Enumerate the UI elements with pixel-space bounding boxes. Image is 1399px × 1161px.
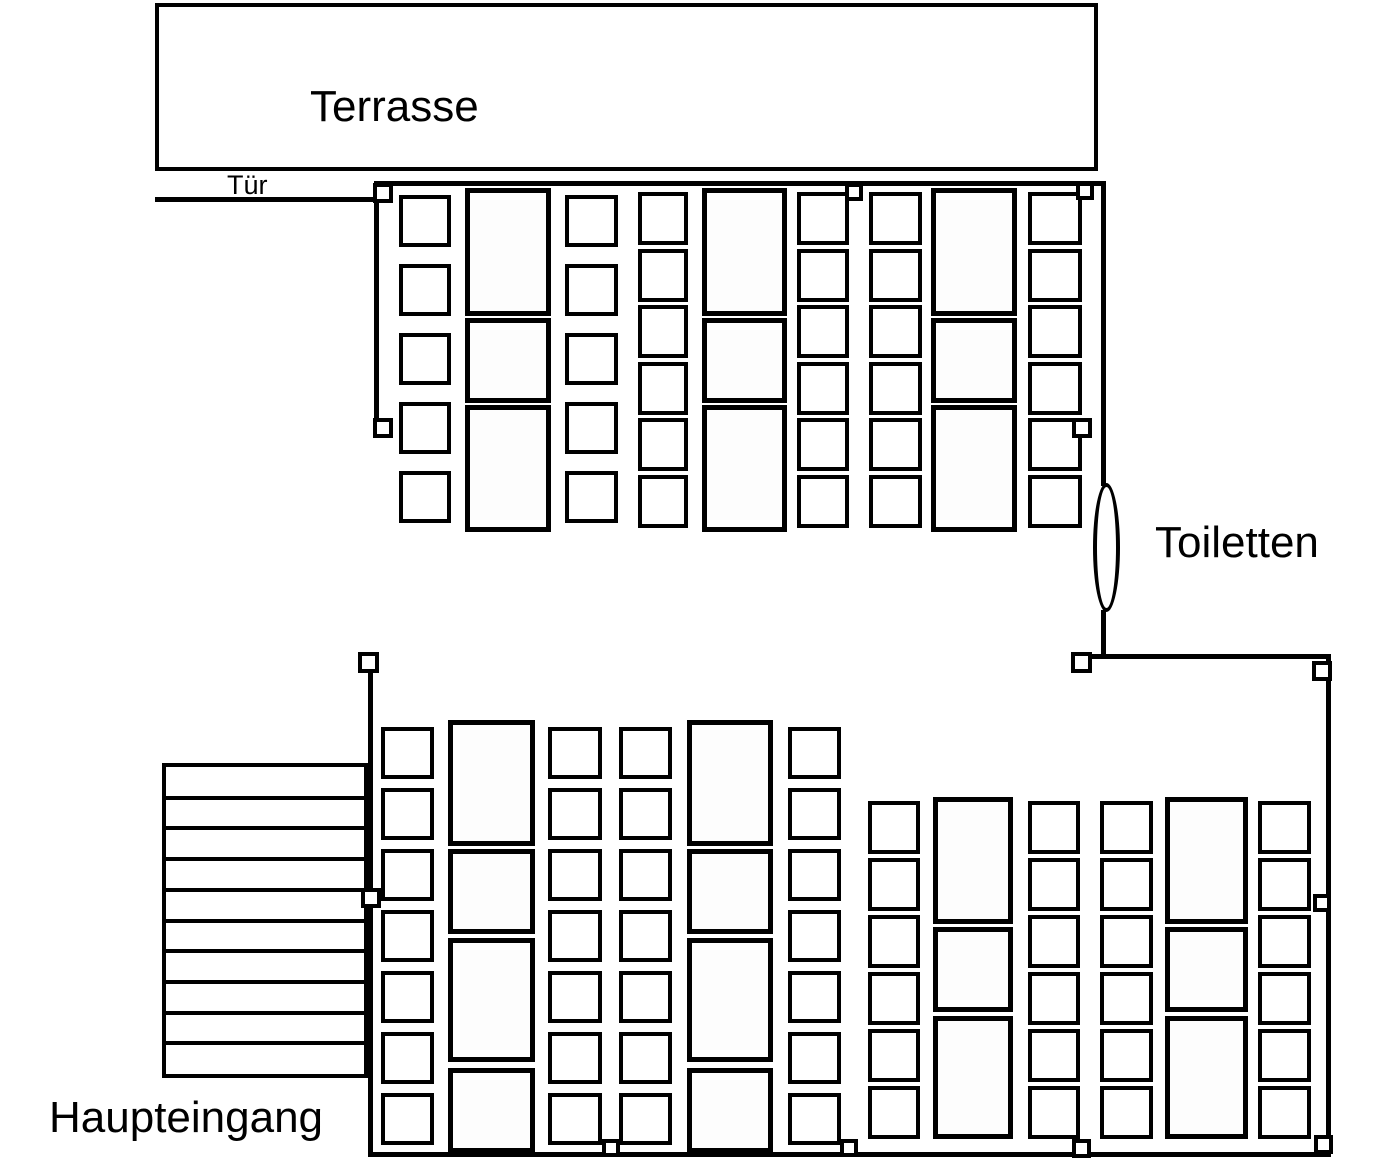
chair bbox=[788, 1093, 841, 1145]
chair bbox=[565, 195, 618, 247]
chair bbox=[868, 915, 920, 968]
selection-handle[interactable] bbox=[1314, 1135, 1333, 1154]
table bbox=[448, 938, 535, 1062]
chair bbox=[619, 727, 672, 779]
chair bbox=[1100, 1029, 1153, 1082]
chair bbox=[1028, 475, 1082, 528]
chair bbox=[788, 910, 841, 962]
chair bbox=[1028, 1086, 1080, 1139]
terrace-area: Terrasse bbox=[155, 3, 1098, 171]
selection-handle[interactable] bbox=[373, 183, 393, 203]
selection-handle[interactable] bbox=[1312, 661, 1332, 681]
selection-handle[interactable] bbox=[373, 418, 393, 438]
chair bbox=[619, 971, 672, 1023]
chair bbox=[638, 192, 688, 245]
toilet-door-arc bbox=[1093, 483, 1120, 612]
table bbox=[465, 405, 551, 532]
selection-handle[interactable] bbox=[1072, 418, 1092, 438]
chair bbox=[797, 475, 849, 528]
stair-step-line bbox=[166, 888, 364, 892]
chair bbox=[638, 305, 688, 358]
chair bbox=[1028, 1029, 1080, 1082]
chair bbox=[399, 402, 451, 454]
chair bbox=[638, 475, 688, 528]
chair bbox=[1028, 249, 1082, 302]
chair bbox=[797, 249, 849, 302]
wall-segment bbox=[1101, 610, 1106, 658]
chair bbox=[1258, 858, 1311, 911]
selection-handle[interactable] bbox=[1072, 1139, 1091, 1158]
table bbox=[933, 1016, 1013, 1139]
chair bbox=[548, 727, 602, 779]
chair bbox=[869, 475, 922, 528]
chair bbox=[868, 858, 920, 911]
stair-step-line bbox=[166, 1011, 364, 1015]
chair bbox=[638, 249, 688, 302]
chair bbox=[868, 1086, 920, 1139]
floor-plan: Terrasse Tür Toiletten Haupteingang bbox=[0, 0, 1399, 1161]
wall-segment bbox=[1101, 181, 1106, 486]
chair bbox=[565, 402, 618, 454]
chair bbox=[869, 249, 922, 302]
chair bbox=[548, 971, 602, 1023]
table bbox=[933, 797, 1013, 924]
chair bbox=[869, 305, 922, 358]
chair bbox=[548, 788, 602, 840]
chair bbox=[381, 1032, 434, 1084]
table bbox=[931, 188, 1017, 316]
chair bbox=[638, 418, 688, 471]
selection-handle[interactable] bbox=[361, 888, 381, 908]
selection-handle[interactable] bbox=[1076, 182, 1094, 200]
chair bbox=[868, 972, 920, 1025]
chair bbox=[619, 910, 672, 962]
chair bbox=[797, 305, 849, 358]
chair bbox=[1028, 858, 1080, 911]
chair bbox=[1028, 192, 1082, 245]
selection-handle[interactable] bbox=[845, 183, 863, 201]
selection-handle[interactable] bbox=[840, 1139, 858, 1157]
chair bbox=[1028, 362, 1082, 415]
chair bbox=[788, 971, 841, 1023]
chair bbox=[1258, 1029, 1311, 1082]
chair bbox=[381, 788, 434, 840]
table bbox=[687, 1068, 773, 1153]
table bbox=[687, 849, 773, 934]
chair bbox=[788, 849, 841, 901]
chair bbox=[381, 910, 434, 962]
wall-segment bbox=[1090, 654, 1331, 659]
table bbox=[1165, 797, 1248, 924]
chair bbox=[1028, 972, 1080, 1025]
chair bbox=[868, 801, 920, 854]
chair bbox=[868, 1029, 920, 1082]
wall-segment bbox=[374, 181, 1105, 186]
chair bbox=[797, 362, 849, 415]
chair bbox=[1028, 305, 1082, 358]
stair-step-line bbox=[166, 1041, 364, 1045]
chair bbox=[788, 1032, 841, 1084]
stair-step-line bbox=[166, 796, 364, 800]
chair bbox=[619, 849, 672, 901]
stair-step-line bbox=[166, 919, 364, 923]
chair bbox=[869, 192, 922, 245]
chair bbox=[548, 1032, 602, 1084]
chair bbox=[788, 727, 841, 779]
chair bbox=[399, 264, 451, 316]
selection-handle[interactable] bbox=[1071, 652, 1092, 673]
stair-step-line bbox=[166, 857, 364, 861]
wall-segment bbox=[374, 181, 379, 428]
table bbox=[933, 927, 1013, 1012]
chair bbox=[1028, 801, 1080, 854]
chair bbox=[399, 333, 451, 385]
door-label: Tür bbox=[227, 172, 268, 199]
chair bbox=[565, 471, 618, 523]
chair bbox=[797, 418, 849, 471]
chair bbox=[869, 362, 922, 415]
selection-handle[interactable] bbox=[1313, 894, 1331, 912]
stair-step-line bbox=[166, 826, 364, 830]
chair bbox=[1028, 915, 1080, 968]
terrace-label: Terrasse bbox=[310, 85, 479, 129]
chair bbox=[381, 727, 434, 779]
chair bbox=[619, 788, 672, 840]
selection-handle[interactable] bbox=[358, 652, 379, 673]
chair bbox=[381, 1093, 434, 1145]
table bbox=[702, 188, 787, 316]
table bbox=[448, 849, 535, 934]
chair bbox=[1100, 1086, 1153, 1139]
chair bbox=[548, 1093, 602, 1145]
chair bbox=[548, 849, 602, 901]
chair bbox=[619, 1032, 672, 1084]
table bbox=[448, 1068, 535, 1153]
chair bbox=[399, 195, 451, 247]
chair bbox=[399, 471, 451, 523]
toilets-label: Toiletten bbox=[1155, 521, 1319, 565]
chair bbox=[1100, 858, 1153, 911]
chair bbox=[797, 192, 849, 245]
stair-step-line bbox=[166, 980, 364, 984]
table bbox=[1165, 927, 1248, 1012]
table bbox=[702, 405, 787, 532]
chair bbox=[565, 264, 618, 316]
selection-handle[interactable] bbox=[602, 1139, 620, 1157]
chair bbox=[869, 418, 922, 471]
chair bbox=[548, 910, 602, 962]
chair bbox=[1258, 972, 1311, 1025]
stair-step-line bbox=[166, 949, 364, 953]
table bbox=[687, 938, 773, 1062]
chair bbox=[1258, 1086, 1311, 1139]
chair bbox=[381, 849, 434, 901]
table bbox=[1165, 1016, 1248, 1139]
chair bbox=[638, 362, 688, 415]
chair bbox=[788, 788, 841, 840]
chair bbox=[619, 1093, 672, 1145]
main-entrance-label: Haupteingang bbox=[49, 1096, 323, 1140]
table bbox=[931, 405, 1017, 532]
chair bbox=[1258, 801, 1311, 854]
chair bbox=[1258, 915, 1311, 968]
table bbox=[687, 720, 773, 846]
table bbox=[448, 720, 535, 846]
chair bbox=[565, 333, 618, 385]
chair bbox=[1100, 972, 1153, 1025]
chair bbox=[1100, 801, 1153, 854]
table bbox=[465, 188, 551, 316]
table bbox=[465, 318, 551, 403]
wall-segment bbox=[155, 197, 374, 202]
table bbox=[931, 318, 1017, 403]
chair bbox=[381, 971, 434, 1023]
chair bbox=[1100, 915, 1153, 968]
table bbox=[702, 318, 787, 403]
